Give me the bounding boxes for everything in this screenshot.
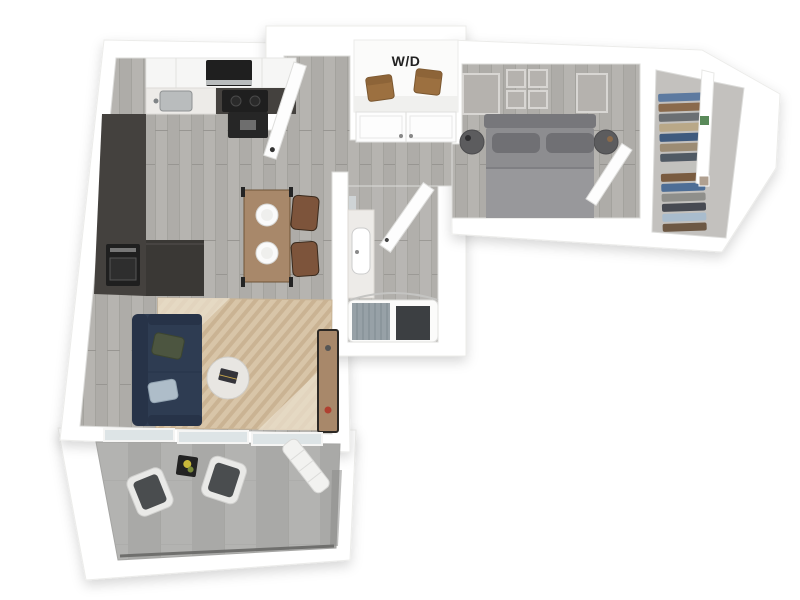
wall-art	[529, 70, 547, 87]
clothes-item	[663, 222, 707, 232]
dining-chair	[291, 241, 319, 277]
bed-pillow	[546, 133, 594, 153]
laundry-label: W/D	[392, 53, 421, 69]
cooktop	[222, 90, 268, 112]
clothes-item	[661, 192, 705, 202]
hood-vent	[240, 120, 256, 130]
kitchen-island	[146, 240, 204, 296]
clothes-item	[659, 122, 703, 132]
table-leg	[241, 277, 245, 287]
sofa-armrest	[148, 415, 202, 426]
glass-panel	[178, 431, 248, 443]
vanity-sink	[352, 228, 370, 274]
wall-art-large	[463, 74, 499, 114]
closet-decor-frame	[699, 176, 709, 186]
headboard	[484, 114, 596, 128]
throw-pillow-blue	[147, 379, 178, 404]
clothes-item	[662, 212, 706, 222]
oven-handle	[110, 248, 136, 252]
nightstand-decor	[465, 135, 471, 141]
clothes-item	[659, 112, 703, 122]
chair-seat	[291, 241, 319, 277]
clothes-item	[658, 92, 702, 102]
plate-center	[261, 247, 273, 259]
microwave-steel-trim	[206, 80, 252, 85]
door-knob	[399, 134, 403, 138]
wall-art	[577, 74, 607, 112]
table-leg	[241, 187, 245, 197]
sofa-back	[132, 314, 148, 426]
nightstand	[460, 130, 484, 154]
plate-center	[261, 209, 273, 221]
door-knob	[409, 134, 413, 138]
dryer	[414, 69, 443, 96]
burner	[231, 96, 241, 106]
bath-mat	[396, 306, 430, 340]
wall-art	[529, 91, 547, 108]
sofa-armrest	[148, 314, 202, 325]
bed-blanket	[486, 168, 594, 218]
glass-panel	[104, 429, 174, 441]
console-decor	[325, 345, 331, 351]
balcony-side-table	[176, 455, 199, 478]
bed-pillow	[492, 133, 540, 153]
console-decor-red	[325, 407, 332, 414]
wall-art	[507, 70, 525, 87]
walk-in-closet	[658, 70, 714, 232]
chair-seat	[291, 195, 320, 231]
oven-window	[110, 258, 136, 280]
wall-art	[507, 91, 525, 108]
nightstand-decor	[607, 136, 613, 142]
faucet	[154, 99, 159, 104]
washer	[365, 74, 394, 101]
table-leg	[289, 187, 293, 197]
floorplan-render: W/D	[0, 0, 800, 600]
closet-decor-green	[700, 116, 709, 125]
clothes-item	[662, 202, 706, 212]
clothes-item	[659, 132, 703, 142]
pillow	[147, 379, 178, 404]
shower-curtain	[352, 303, 390, 340]
table-leg	[289, 277, 293, 287]
dining-chair	[291, 195, 320, 231]
sink-faucet	[355, 250, 359, 254]
kitchen-sink	[160, 91, 192, 111]
nightstand	[594, 130, 618, 154]
clothes-item	[658, 102, 702, 112]
living-room	[132, 298, 338, 432]
burner	[250, 96, 260, 106]
